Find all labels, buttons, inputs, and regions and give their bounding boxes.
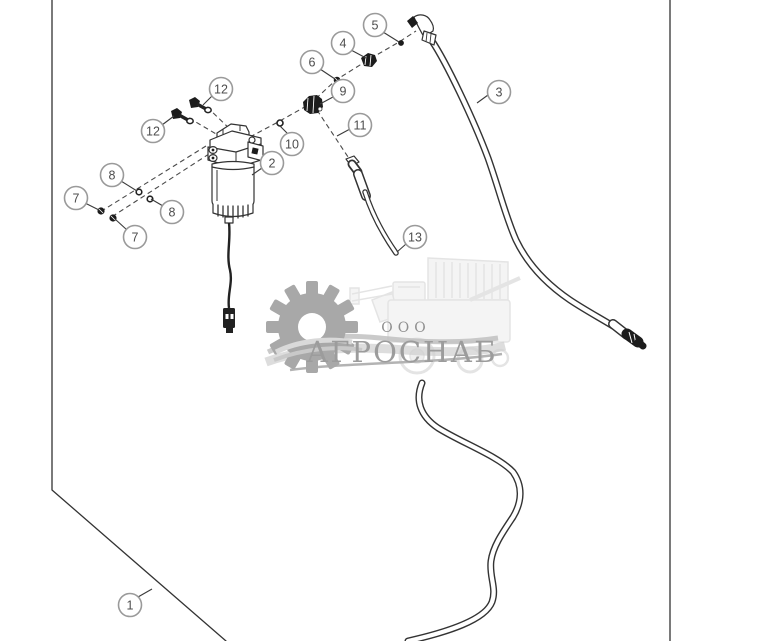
svg-text:2: 2 [269, 157, 276, 171]
svg-text:9: 9 [340, 85, 347, 99]
svg-text:4: 4 [340, 37, 347, 51]
svg-text:12: 12 [214, 83, 228, 97]
callout-2: 2 [261, 152, 284, 175]
callout-8a: 8 [101, 164, 124, 187]
diagram-canvas: ООО АГРОСНАБ [0, 0, 781, 641]
callout-4: 4 [332, 32, 355, 55]
view-boundary-left [52, 0, 226, 641]
elbow-fitting-9 [303, 95, 323, 114]
hose-13 [346, 156, 396, 253]
bolt-12a [189, 97, 211, 113]
svg-text:1: 1 [127, 599, 134, 613]
washer-10 [277, 120, 283, 126]
callout-7b: 7 [124, 226, 147, 249]
hose-bottom-run [408, 383, 520, 641]
callout-9: 9 [332, 80, 355, 103]
svg-text:5: 5 [372, 19, 379, 33]
callout-12a: 12 [210, 78, 233, 101]
callout-3: 3 [488, 81, 511, 104]
nut-7b [109, 214, 116, 221]
callout-13: 13 [404, 226, 427, 249]
svg-text:8: 8 [169, 206, 176, 220]
callout-11: 11 [349, 114, 372, 137]
svg-text:7: 7 [132, 231, 139, 245]
svg-text:10: 10 [285, 138, 299, 152]
svg-text:7: 7 [73, 192, 80, 206]
callout-5: 5 [364, 14, 387, 37]
svg-text:6: 6 [309, 56, 316, 70]
fuel-filter-assembly [208, 124, 263, 333]
washer-8a [136, 189, 142, 195]
callout-7a: 7 [65, 187, 88, 210]
svg-text:13: 13 [408, 231, 422, 245]
watermark-org-form: ООО [381, 320, 430, 336]
svg-text:3: 3 [496, 86, 503, 100]
watermark-company-name: АГРОСНАБ [306, 335, 497, 369]
callout-10: 10 [281, 133, 304, 156]
plug-5 [398, 40, 404, 46]
parts-diagram-page: ООО АГРОСНАБ [0, 0, 781, 641]
callout-6: 6 [301, 51, 324, 74]
nut-7a [97, 207, 104, 214]
fitting-4 [361, 53, 377, 67]
svg-text:8: 8 [109, 169, 116, 183]
callout-8b: 8 [161, 201, 184, 224]
water-sensor-wire [228, 223, 230, 308]
bolt-12b [171, 108, 193, 124]
callout-12b: 12 [142, 120, 165, 143]
svg-text:12: 12 [146, 125, 160, 139]
svg-text:11: 11 [354, 119, 367, 133]
callout-1: 1 [119, 594, 142, 617]
